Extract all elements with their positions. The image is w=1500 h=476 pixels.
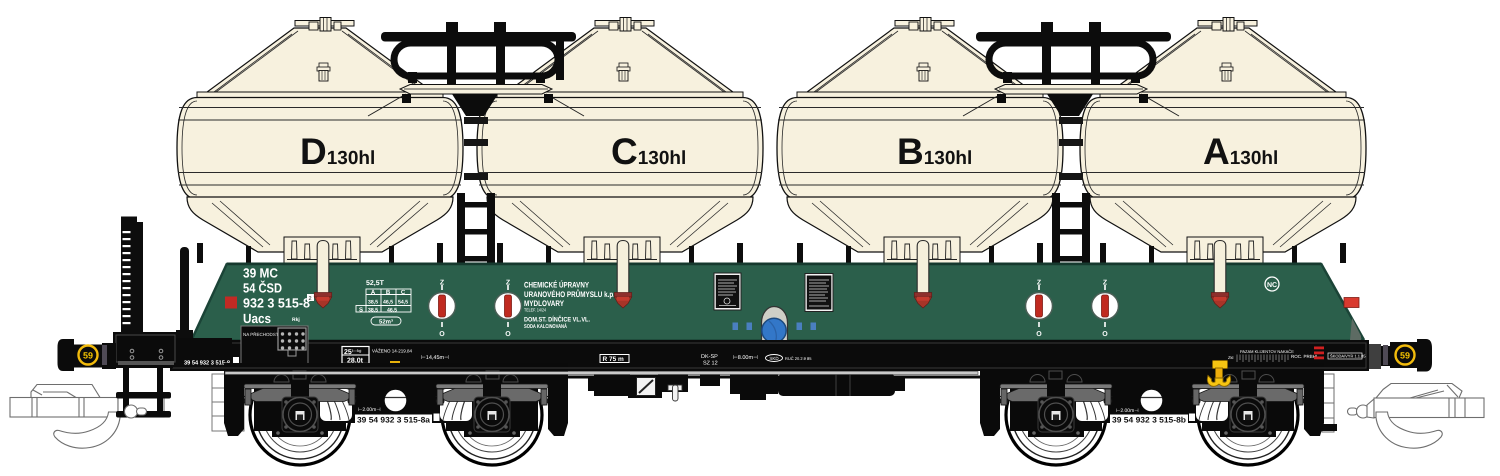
svg-text:RUČ 20.2.9 85: RUČ 20.2.9 85	[785, 356, 812, 361]
svg-text:DOM.ST. DÍNČICE VL.VL.: DOM.ST. DÍNČICE VL.VL.	[524, 316, 590, 324]
svg-text:2: 2	[309, 296, 312, 302]
svg-text:ŠKODA/VYR 1.1.85: ŠKODA/VYR 1.1.85	[1330, 354, 1366, 359]
svg-text:TELEF. 14/24: TELEF. 14/24	[524, 308, 546, 313]
svg-text:46,5: 46,5	[383, 300, 393, 306]
svg-text:CHEMICKÉ ÚPRAVNY: CHEMICKÉ ÚPRAVNY	[524, 280, 590, 290]
svg-text:⊢2.00m⊣: ⊢2.00m⊣	[358, 407, 381, 413]
svg-text:DK-SP: DK-SP	[701, 354, 718, 360]
svg-text:A: A	[371, 289, 376, 296]
svg-text:46,5: 46,5	[387, 307, 397, 313]
svg-text:59: 59	[83, 351, 93, 361]
svg-text:38,5: 38,5	[368, 300, 378, 306]
svg-text:38,5: 38,5	[368, 307, 378, 313]
svg-text:Rkj: Rkj	[292, 317, 300, 323]
svg-text:t—kg: t—kg	[352, 348, 361, 353]
svg-text:C: C	[401, 289, 406, 296]
svg-text:54 ČSD: 54 ČSD	[243, 281, 282, 296]
svg-text:URANOVÉHO PRŮMYSLU k.p.: URANOVÉHO PRŮMYSLU k.p.	[524, 289, 615, 299]
svg-text:PAZAM KLIJENTOV NAKAČE: PAZAM KLIJENTOV NAKAČE	[1240, 349, 1294, 354]
svg-text:54,5: 54,5	[398, 300, 408, 306]
svg-text:VÁŽENO 14·219.84: VÁŽENO 14·219.84	[372, 349, 413, 354]
svg-text:52m³: 52m³	[379, 319, 393, 326]
svg-text:NA PŘECHODST: NA PŘECHODST	[243, 332, 279, 337]
svg-text:39 54 932 3 515-8a: 39 54 932 3 515-8a	[357, 416, 431, 425]
svg-text:⊢14,45m⊣: ⊢14,45m⊣	[421, 355, 449, 361]
svg-text:Uacs: Uacs	[243, 311, 271, 326]
svg-text:932 3 515-8: 932 3 515-8	[243, 296, 310, 311]
svg-text:39 54 932 3 515-8: 39 54 932 3 515-8	[184, 360, 231, 367]
svg-text:39 54 932 3 515-8b: 39 54 932 3 515-8b	[1112, 416, 1186, 425]
svg-text:SODA KALCINOVANÁ: SODA KALCINOVANÁ	[524, 323, 567, 330]
svg-text:52,5T: 52,5T	[366, 280, 385, 287]
svg-text:⊢8.00m⊣: ⊢8.00m⊣	[733, 355, 758, 361]
svg-text:S: S	[359, 306, 363, 313]
svg-text:⊢2.00m⊣: ⊢2.00m⊣	[1116, 408, 1139, 414]
svg-text:SKD: SKD	[769, 356, 779, 361]
svg-text:59: 59	[1400, 351, 1410, 361]
svg-text:25: 25	[344, 349, 352, 356]
svg-text:Zkl: Zkl	[1228, 355, 1233, 360]
svg-text:R 75 m: R 75 m	[603, 356, 625, 363]
svg-text:B: B	[386, 289, 391, 296]
svg-text:NC: NC	[1267, 282, 1277, 289]
svg-text:39 MC: 39 MC	[243, 266, 278, 281]
svg-text:SZ 12: SZ 12	[703, 361, 718, 367]
